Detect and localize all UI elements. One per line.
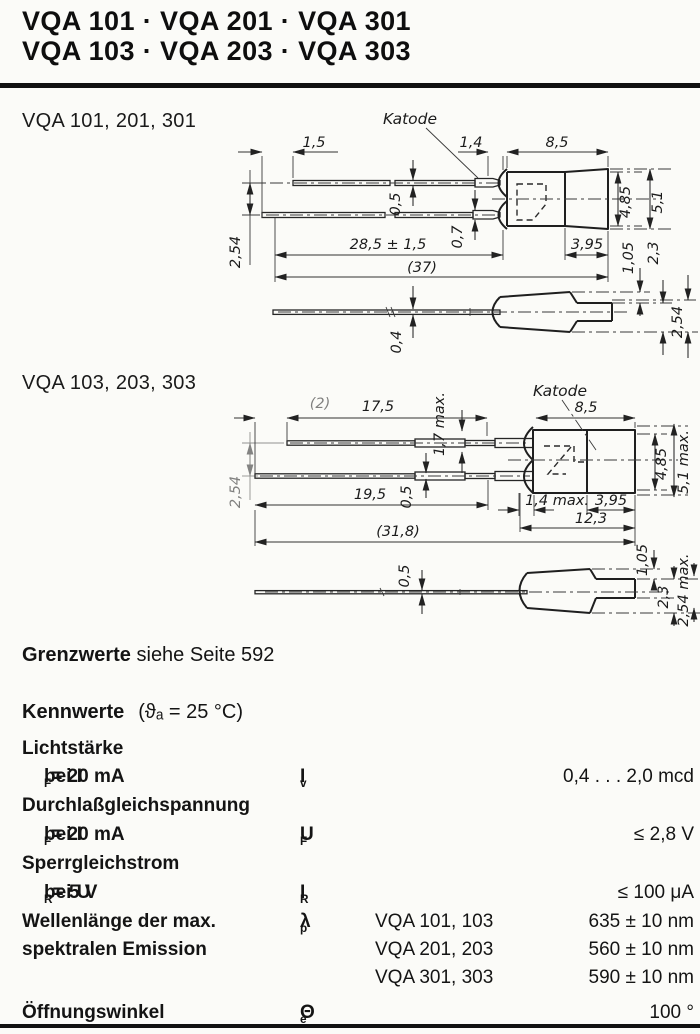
footer-rule: [0, 1024, 700, 1028]
param-name: Öffnungswinkel: [22, 1002, 165, 1024]
table-row: Sperrgleichstrom: [22, 853, 694, 879]
vqa101-dimension-drawing: Katode 1,5 2,54 0,5 0,7: [230, 110, 700, 380]
dim-label: 2,54 max.: [676, 553, 692, 626]
param-symbol: λp: [300, 911, 307, 935]
param-condition: bei IF = 20 mA: [44, 766, 51, 790]
param-value: ≤ 100 μA: [618, 882, 694, 904]
dim-label: 1,05: [621, 242, 637, 274]
param-value: 560 ± 10 nm: [589, 939, 695, 961]
table-row: Wellenlänge der max. λp VQA 101, 103 635…: [22, 911, 694, 937]
upper-view-body: [508, 427, 678, 493]
dim-label: 5,1 max.: [676, 430, 692, 494]
param-condition: bei IF = 20 mA: [44, 824, 51, 848]
datasheet-page: VQA 101 · VQA 201 · VQA 301 VQA 103 · VQ…: [0, 0, 700, 1034]
dim-label: 2,54: [228, 236, 244, 268]
param-type: VQA 301, 303: [375, 967, 493, 989]
dim-label: (2): [310, 396, 331, 412]
kennwerte-heading: Kennwerte(ϑₐ = 25 °C): [22, 701, 243, 724]
param-type: VQA 101, 103: [375, 911, 493, 933]
lower-view: [255, 569, 670, 613]
param-symbol: Iv: [300, 766, 307, 790]
dim-label: 28,5 ± 1,5: [350, 237, 427, 253]
lower-view: [273, 292, 630, 332]
dim-label: 0,5: [397, 564, 413, 587]
dim-label: 2,3: [646, 241, 662, 264]
header-rule: [0, 83, 700, 88]
table-row: Lichtstärke: [22, 738, 694, 764]
kennwerte-heading-label: Kennwerte: [22, 701, 124, 723]
lower-view-dimensions: 0,4 1,05 2,3 2,54: [389, 241, 698, 358]
table-row: VQA 301, 303 590 ± 10 nm: [22, 967, 694, 993]
upper-view-dimensions: (2) 17,5 2,54 1,7 max. 8,5: [228, 392, 692, 546]
dim-label: 4,85: [654, 448, 670, 480]
page-title-line-1: VQA 101 · VQA 201 · VQA 301: [22, 6, 411, 37]
dim-label: 0,5: [399, 485, 415, 508]
dim-label: 2,54: [670, 306, 686, 338]
dim-label: 17,5: [362, 399, 394, 415]
dim-label: 3,95: [595, 493, 627, 509]
dim-label: 3,95: [571, 237, 603, 253]
dim-label: 8,5: [574, 400, 597, 416]
dim-label: 5,1: [650, 190, 666, 213]
param-name: Wellenlänge der max.: [22, 911, 216, 933]
lower-view-dimensions: 0,5 1,05 2,3 2,54 max.: [397, 544, 700, 627]
dim-label: 0,4: [389, 330, 405, 353]
dim-label: 1,4: [459, 135, 482, 151]
table-row: Durchlaßgleichspannung: [22, 795, 694, 821]
param-value: ≤ 2,8 V: [634, 824, 694, 846]
param-value: 590 ± 10 nm: [589, 967, 695, 989]
dim-label: 4,85: [618, 186, 634, 218]
table-row: bei IF = 20 mA Iv 0,4 . . . 2,0 mcd: [22, 766, 694, 792]
table-row: bei IF = 20 mA UF ≤ 2,8 V: [22, 824, 694, 850]
katode-label: Katode: [383, 110, 437, 128]
section1-heading: VQA 101, 201, 301: [22, 110, 196, 133]
dim-label: 8,5: [545, 135, 568, 151]
param-symbol: Θe: [300, 1002, 307, 1026]
kennwerte-condition: (ϑₐ = 25 °C): [138, 701, 243, 723]
grenzwerte-note: Grenzwerte siehe Seite 592: [22, 644, 274, 667]
param-symbol: UF: [300, 824, 307, 848]
param-name: Durchlaßgleichspannung: [22, 795, 250, 817]
param-value: 635 ± 10 nm: [589, 911, 695, 933]
table-row: spektralen Emission VQA 201, 203 560 ± 1…: [22, 939, 694, 965]
param-type: VQA 201, 203: [375, 939, 493, 961]
table-row: bei UR = 5 V IR ≤ 100 μA: [22, 882, 694, 908]
dim-label: (31,8): [376, 524, 420, 540]
param-condition: bei UR = 5 V: [44, 882, 53, 906]
grenzwerte-note-bold: Grenzwerte: [22, 644, 131, 666]
dim-label: 12,3: [575, 511, 607, 527]
dim-label: 1,7 max.: [432, 392, 448, 456]
param-value: 100 °: [649, 1002, 694, 1024]
dim-label: 2,54: [228, 476, 244, 508]
param-value: 0,4 . . . 2,0 mcd: [563, 766, 694, 788]
katode-label: Katode: [533, 382, 587, 400]
chip-outline-dashed: [517, 184, 546, 220]
param-name: Sperrgleichstrom: [22, 853, 179, 875]
dim-label: 1,5: [302, 135, 325, 151]
kennwerte-table: Lichtstärke bei IF = 20 mA Iv 0,4 . . . …: [22, 736, 694, 1032]
dim-label: 1,05: [635, 544, 651, 576]
param-symbol: IR: [300, 882, 309, 906]
dim-label: 19,5: [354, 487, 386, 503]
upper-view-body: [492, 169, 662, 229]
dim-label: 1,4 max.: [525, 493, 589, 509]
param-name: Lichtstärke: [22, 738, 123, 760]
upper-view-leads: [255, 439, 533, 481]
vqa103-dimension-drawing: Katode (2) 17,5 2,54 1,7 max.: [230, 380, 700, 635]
page-title-line-2: VQA 103 · VQA 203 · VQA 303: [22, 36, 411, 67]
dim-label: (37): [407, 260, 437, 276]
grenzwerte-note-rest: siehe Seite 592: [131, 644, 274, 666]
upper-view-leads: [262, 179, 500, 220]
dim-label: 2,3: [656, 585, 672, 608]
dim-label: 0,7: [450, 225, 466, 249]
section2-heading: VQA 103, 203, 303: [22, 372, 196, 395]
dim-label: 0,5: [388, 192, 404, 215]
param-name: spektralen Emission: [22, 939, 207, 961]
